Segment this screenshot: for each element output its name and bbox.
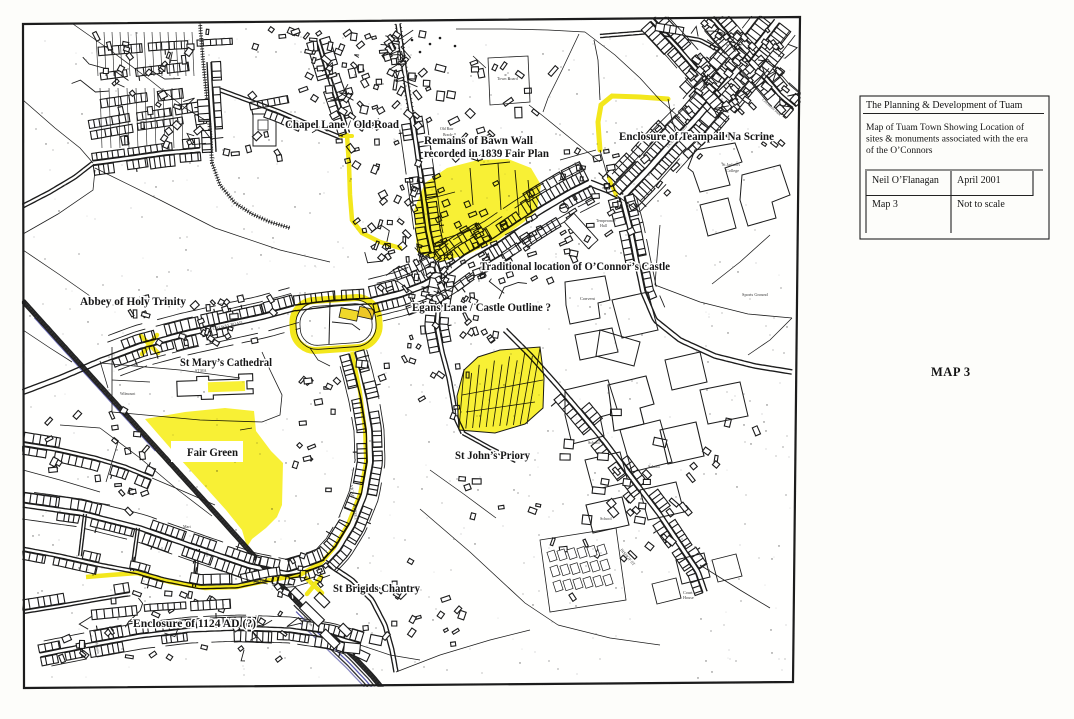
svg-text:Sports Ground: Sports Ground [742,292,769,297]
svg-text:Enclosure of Teampail Na Scrin: Enclosure of Teampail Na Scrine [619,131,774,143]
svg-text:Traditional location of O’Conn: Traditional location of O’Connor’s Castl… [480,261,670,273]
svg-text:Not to scale: Not to scale [957,199,1005,210]
svg-text:St Brigids Chantry: St Brigids Chantry [333,583,420,595]
svg-text:St John’s Priory: St John’s Priory [455,450,530,462]
svg-text:Convent: Convent [580,296,596,301]
svg-text:Map of Tuam Town Showing Locat: Map of Tuam Town Showing Location of [866,122,1025,133]
svg-text:Fair Green: Fair Green [187,447,239,459]
svg-text:Remains of Bawn Wall: Remains of Bawn Wall [424,135,533,147]
svg-text:Chapel Lane / Old Road: Chapel Lane / Old Road [285,119,400,131]
svg-text:Town Board: Town Board [497,76,519,81]
svg-text:STREET: STREET [253,580,267,584]
svg-text:Hall: Hall [600,223,608,228]
svg-text:House: House [683,595,694,600]
svg-text:recorded in 1839 Fair Plan: recorded in 1839 Fair Plan [424,148,550,160]
svg-text:Enclosure of 1124 AD (?): Enclosure of 1124 AD (?) [133,618,256,630]
svg-text:MAP 3: MAP 3 [931,365,971,379]
svg-text:Abbey of Holy Trinity: Abbey of Holy Trinity [80,296,186,308]
svg-text:Old Barr: Old Barr [440,127,454,131]
svg-text:Mart: Mart [183,524,192,529]
svg-text:Wilmount: Wilmount [120,392,136,396]
svg-text:Egans Lane / Castle Outline ?: Egans Lane / Castle Outline ? [412,302,551,314]
svg-text:of the O’Connors: of the O’Connors [866,145,933,156]
svg-text:ST MA: ST MA [195,369,207,373]
svg-text:School: School [648,464,660,469]
svg-text:School: School [600,516,612,521]
svg-text:School: School [588,440,600,445]
svg-text:April 2001: April 2001 [957,175,1001,186]
svg-text:College: College [726,168,739,173]
svg-text:Map 3: Map 3 [872,199,898,210]
svg-text:St Jarlath's: St Jarlath's [722,162,740,167]
svg-text:sites & monuments associated w: sites & monuments associated with the er… [866,135,1029,145]
svg-text:St Mary’s Cathedral: St Mary’s Cathedral [180,357,272,369]
svg-text:Neil O’Flanagan: Neil O’Flanagan [872,175,939,186]
svg-text:The Planning & Development of: The Planning & Development of Tuam [866,100,1023,111]
